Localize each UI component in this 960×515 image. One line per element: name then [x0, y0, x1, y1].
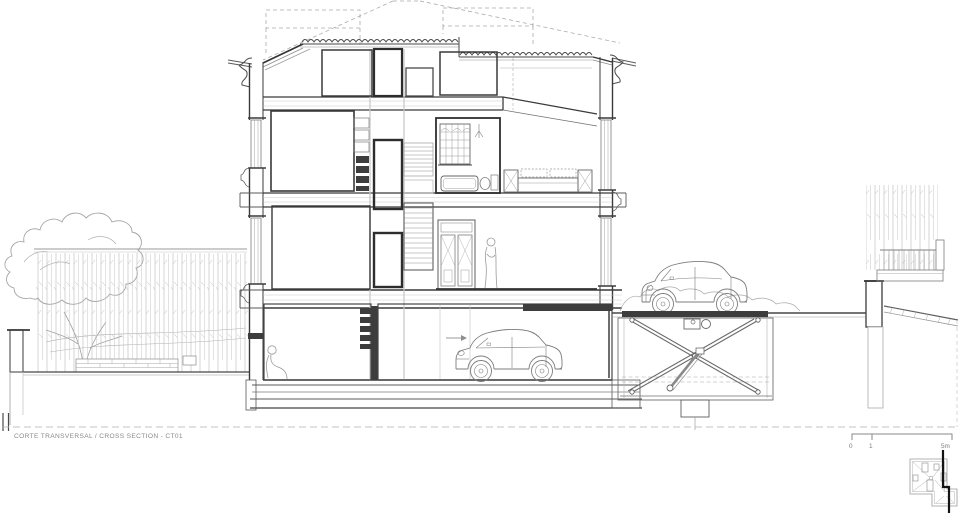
pit-sump [681, 400, 709, 417]
eave-stub-right [612, 58, 636, 66]
stair-flight-upper [404, 143, 433, 193]
hedge-outline [620, 287, 800, 311]
basement-garage [248, 304, 612, 382]
architectural-sheet: CORTE TRANSVERSAL / CROSS SECTION - CT01… [0, 0, 960, 515]
toilet [491, 175, 498, 190]
hydraulic-ram [670, 352, 699, 388]
roof-projection-dashed [263, 1, 620, 110]
lift-pit [618, 318, 773, 430]
key-plan [910, 450, 957, 513]
person-seated [266, 346, 287, 379]
street-ramp [884, 306, 958, 427]
street-car [642, 261, 747, 314]
bathroom-window [440, 124, 470, 164]
boundary-wall-right [864, 281, 884, 408]
core-wall-basement [371, 306, 378, 380]
bathroom [436, 118, 500, 193]
garage-door-open [523, 304, 612, 311]
scale-bar: 0 1 5m [849, 434, 952, 450]
stair-core [370, 49, 433, 380]
elevator-shaft [374, 233, 402, 287]
street-right [612, 185, 958, 430]
elevator-shaft [374, 49, 402, 96]
entry-door [438, 220, 475, 289]
garden-left [3, 213, 250, 431]
roof-tiles-left [302, 40, 458, 43]
garage-car [456, 329, 562, 381]
threshold [248, 333, 264, 339]
stair-flight-lower [404, 203, 433, 270]
facade-wall-right [598, 57, 621, 310]
boundary-wall-left [3, 330, 30, 431]
roof-tiles-right [460, 53, 592, 56]
scale-tick-1: 1 [869, 443, 873, 450]
roof [228, 37, 636, 70]
bedroom-bed [504, 169, 592, 192]
drawing-title: CORTE TRANSVERSAL / CROSS SECTION - CT01 [14, 433, 183, 440]
bamboo-plants-right [866, 185, 938, 270]
living-room-volume [272, 206, 370, 289]
scale-tick-5m: 5m [941, 443, 950, 450]
shelf-column [354, 118, 369, 191]
building-section [228, 37, 642, 410]
shower-head [475, 124, 483, 138]
scissor-car-lift [628, 318, 760, 394]
cross-section-drawing: CORTE TRANSVERSAL / CROSS SECTION - CT01… [0, 0, 960, 515]
bamboo-plants-left [34, 253, 248, 372]
wardrobe [271, 111, 354, 191]
sloped-ceiling-right [503, 97, 597, 114]
elevator-shaft [374, 140, 402, 209]
second-floor [271, 111, 592, 193]
scale-tick-0: 0 [849, 443, 853, 450]
lift-platform [622, 311, 768, 317]
direction-arrow [446, 335, 467, 341]
first-floor [272, 206, 597, 289]
foundation [246, 380, 642, 410]
person-standing [485, 238, 497, 288]
